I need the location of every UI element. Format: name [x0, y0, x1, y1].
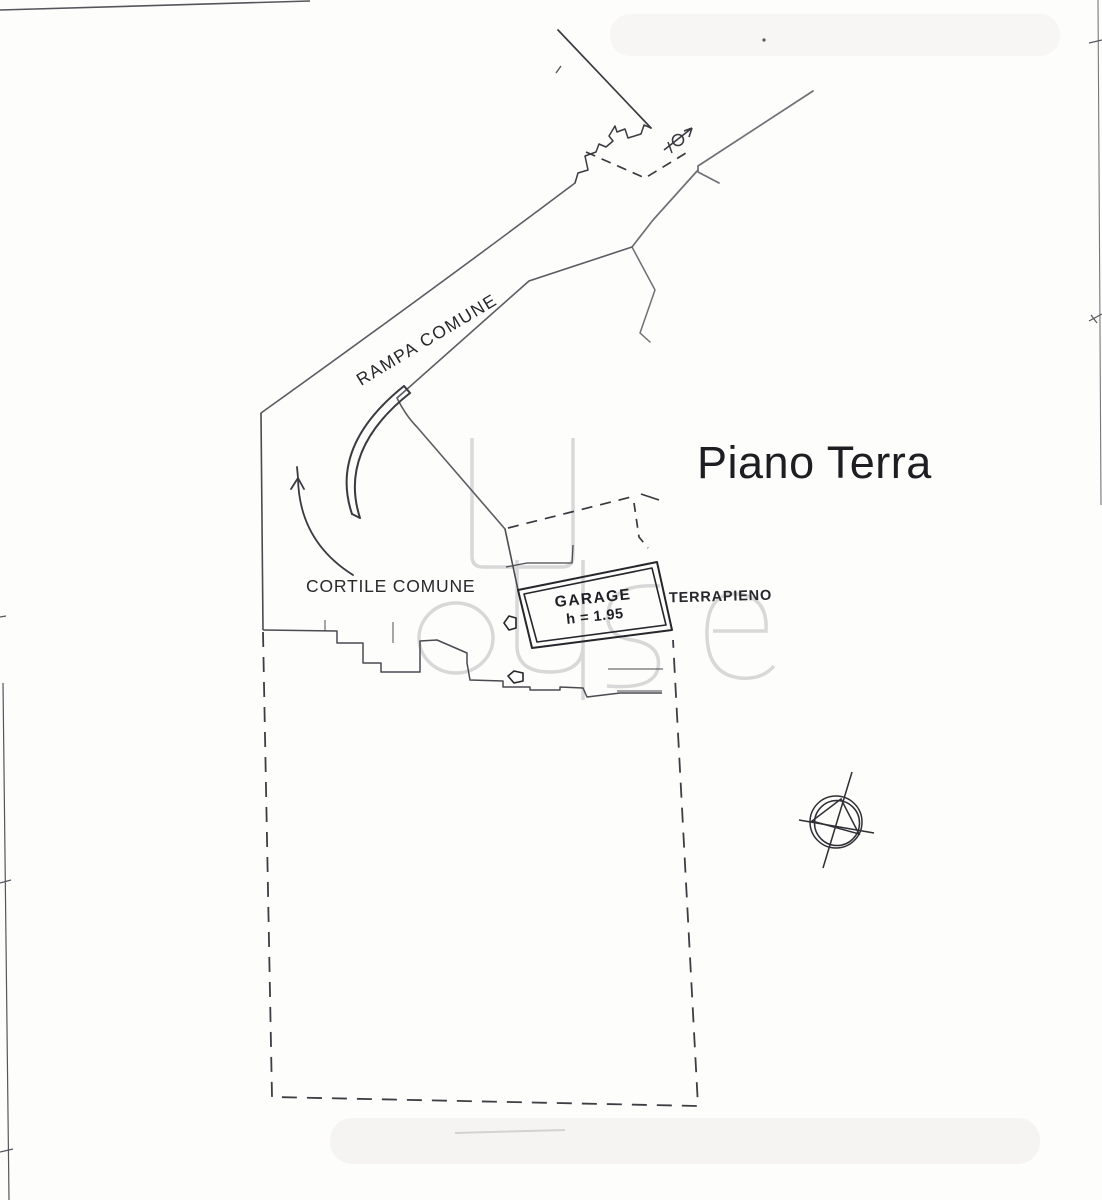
stray-speck [762, 38, 765, 41]
overhang-dash-segment [641, 494, 659, 500]
courtyard-label: CORTILE COMUNE [306, 576, 475, 597]
ramp-outline [261, 183, 632, 575]
right-frame-tick-top [1089, 40, 1102, 43]
scan-artifact-line [455, 1130, 565, 1133]
watermark-letter-e [707, 594, 774, 678]
door-arrows [504, 616, 523, 683]
benchmark-axis-steep [823, 772, 852, 868]
right-frame-line [1098, 0, 1101, 505]
watermark-letter-o [419, 603, 493, 673]
overhang-dashed-outline [508, 494, 659, 548]
left-frame-line [3, 683, 9, 1200]
top-left-boundary-line [558, 30, 651, 128]
watermark-letter-h [472, 438, 573, 567]
top-page-edge-line [0, 1, 310, 10]
left-frame-tick-bottom [0, 1149, 13, 1152]
benchmark-circle-symbol [799, 772, 874, 868]
ramp-upper-approach-line [632, 170, 698, 247]
courtyard-building-outline [261, 413, 663, 697]
upper-site-outline [558, 30, 813, 342]
door-swing-arrow [508, 671, 523, 683]
floor-plan-page: { "title": "Piano Terra", "labels": { "r… [0, 0, 1102, 1200]
boundary-zigzag-spur [632, 247, 655, 342]
left-site-boundary [261, 413, 263, 630]
overhang-dashed-right [634, 503, 648, 548]
building-stepped-south-edge [263, 630, 662, 697]
top-right-boundary-line [698, 91, 813, 183]
property-boundary-dashed [263, 632, 698, 1106]
north-arrow-shaft [664, 128, 692, 150]
page-title: Piano Terra [697, 437, 932, 489]
embankment-label: TERRAPIENO [669, 588, 772, 607]
stray-tick-mark [556, 66, 561, 73]
top-dashed-line-group [586, 128, 692, 178]
door-swing-arrow [504, 616, 516, 630]
left-frame-tick-top [0, 616, 6, 617]
top-dashed-line [586, 152, 686, 178]
ramp-direction-arrow [298, 478, 353, 575]
overhang-dashed-top [508, 497, 631, 528]
stepped-building-edge [575, 125, 651, 183]
wall-above-garage-left [505, 529, 518, 590]
